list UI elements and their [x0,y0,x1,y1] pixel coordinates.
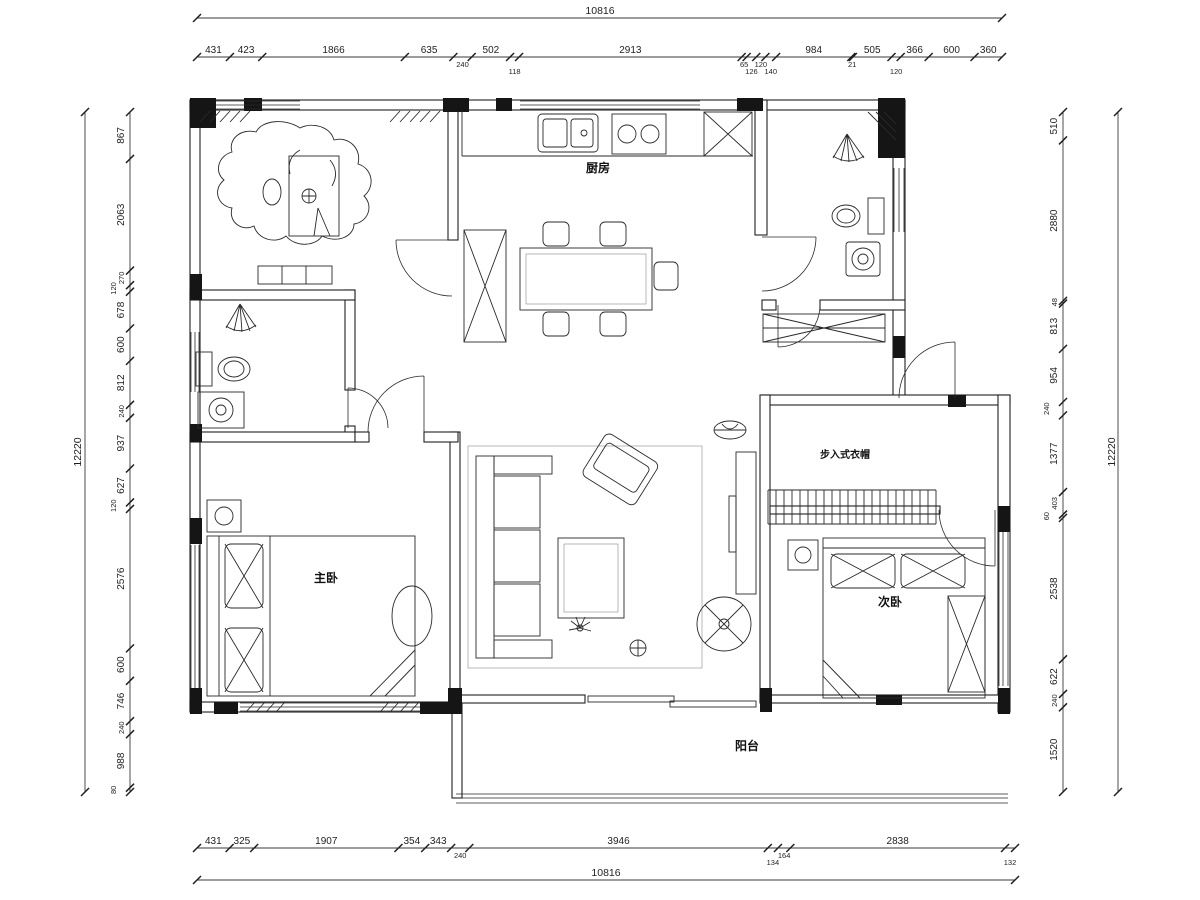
nightstand [207,500,241,532]
floor-plant [569,617,591,631]
low-cabinet [258,266,332,284]
tv-console [736,452,756,594]
hall [763,314,885,342]
dining-table [520,248,652,310]
plant-tree [218,122,372,245]
dim-label: 2063 [116,203,127,226]
dim-label: 937 [116,434,127,451]
dim-label: 812 [116,374,127,391]
dim-label: 746 [116,692,127,709]
dim-label: 132 [1004,858,1017,867]
dim-label: 622 [1049,668,1060,685]
shower-icon [226,304,256,332]
dim-label: 1377 [1049,442,1060,465]
dim-label: 120 [890,67,903,76]
dim-chains: 4314231866635240502118291365126120140984… [81,14,1122,884]
study-door [396,240,452,296]
slider-panel [670,701,756,707]
living-room [468,421,756,668]
dim-label: 505 [864,45,881,56]
dim-label: 354 [403,836,420,847]
dim-label: 600 [116,656,127,673]
dim-label: 270 [117,272,126,285]
study [218,122,372,284]
dim-label: 240 [117,721,126,734]
dim-total-left: 12220 [72,437,84,466]
dim-label: 240 [117,405,126,418]
dim-label: 1907 [315,836,338,847]
dining-chair [654,262,678,290]
coffee-table [558,538,624,618]
dim-label: 48 [1050,298,1059,306]
sofa-seat [494,584,540,636]
desk-chair [263,179,281,205]
dim-label: 2576 [116,567,127,590]
dining [520,222,678,336]
dim-label: 510 [1049,117,1060,134]
walls [190,100,1010,798]
dim-label: 120 [109,282,118,295]
dim-label: 635 [421,45,438,56]
dim-label: 118 [509,67,521,76]
dim-chain-right: 5102880488139542401377403602538622240152… [1042,108,1067,796]
suite-door [899,342,955,398]
dim-label: 343 [430,836,447,847]
dim-label: 867 [116,127,127,144]
dim-label: 984 [805,45,822,56]
dim-label: 1866 [322,45,345,56]
master-bedroom [207,500,432,696]
dim-label: 360 [980,45,997,56]
dim-label: 1520 [1049,738,1060,761]
dim-label: 60 [1042,512,1051,520]
dim-label: 240 [454,851,467,860]
sink-cabinet [198,392,244,428]
dim-label: 431 [205,45,222,56]
dim-label: 2913 [619,45,642,56]
dim-label: 678 [116,301,127,318]
sofa-arm [494,640,552,658]
shower-icon [833,134,864,162]
second-bedroom [788,538,985,698]
dining-chair [600,222,626,246]
dim-label: 240 [456,60,469,69]
dim-label: 240 [1050,694,1059,707]
dim-label: 502 [483,45,500,56]
dim-label: 366 [906,45,923,56]
dim-label: 2838 [887,836,910,847]
kitchen [462,110,753,342]
dim-label: 403 [1050,497,1059,510]
master-door [368,376,424,432]
floor-plan-page: 厨房 主卧 次卧 阳台 步入式衣帽 10816 10816 12220 1222… [0,0,1200,900]
toilet-tank [868,198,884,234]
bed [207,536,415,696]
dim-label: 600 [943,45,960,56]
dim-label: 600 [116,336,127,353]
dim-label: 120 [109,499,118,512]
dim-total-top: 10816 [585,5,614,17]
tv [729,496,736,552]
dim-label: 2538 [1049,577,1060,600]
dining-chair [543,222,569,246]
dim-chain-top: 4314231866635240502118291365126120140984… [193,45,1006,76]
dim-label: 140 [765,67,778,76]
dim-label: 325 [234,836,251,847]
floor-plan-svg: 厨房 主卧 次卧 阳台 步入式衣帽 10816 10816 12220 1222… [0,0,1200,900]
stove [612,114,666,154]
room-label-second-bedroom: 次卧 [878,594,902,609]
dim-chain-bottom: 431325190735434324039461341642838132 [193,836,1019,867]
dim-label: 627 [116,477,127,494]
nightstand [788,540,818,570]
dim-label: 240 [1042,402,1051,415]
room-label-walk-in-closet: 步入式衣帽 [820,448,870,461]
slider-panel [588,696,674,702]
dim-label: 954 [1049,367,1060,384]
accent-chair [581,432,660,507]
sofa-back [476,456,494,658]
toilet-icon [832,205,860,227]
sofa-seat [494,530,540,582]
room-label-kitchen: 厨房 [586,160,610,175]
dim-label: 3946 [607,836,630,847]
sofa-arm [494,456,552,474]
dim-total-bottom: 10816 [591,867,620,879]
kitchen-sink [538,114,598,152]
sofa-seat [494,476,540,528]
ottoman [392,586,432,646]
dim-label: 2880 [1049,209,1060,232]
washer [846,242,880,276]
dim-label: 431 [205,836,222,847]
dining-chair [600,312,626,336]
dim-chain-left: 8672063270120678600812240937627120257660… [109,108,134,796]
bath1-door [348,388,388,428]
kitchen-door [762,237,816,291]
dim-label: 21 [848,60,856,69]
room-labels: 厨房 主卧 次卧 阳台 步入式衣帽 [314,160,902,753]
dim-label: 813 [1049,317,1060,334]
dim-label: 164 [778,851,791,860]
bath-left [196,304,256,428]
dim-label: 988 [116,752,127,769]
dim-label: 423 [238,45,255,56]
room-label-master-bedroom: 主卧 [314,570,338,585]
sill-hatch [200,111,440,712]
rug [468,446,702,668]
bed [823,538,985,698]
dim-label: 80 [109,786,118,794]
dining-chair [543,312,569,336]
room-label-balcony: 阳台 [735,738,759,753]
dim-total-right: 12220 [1106,437,1118,466]
